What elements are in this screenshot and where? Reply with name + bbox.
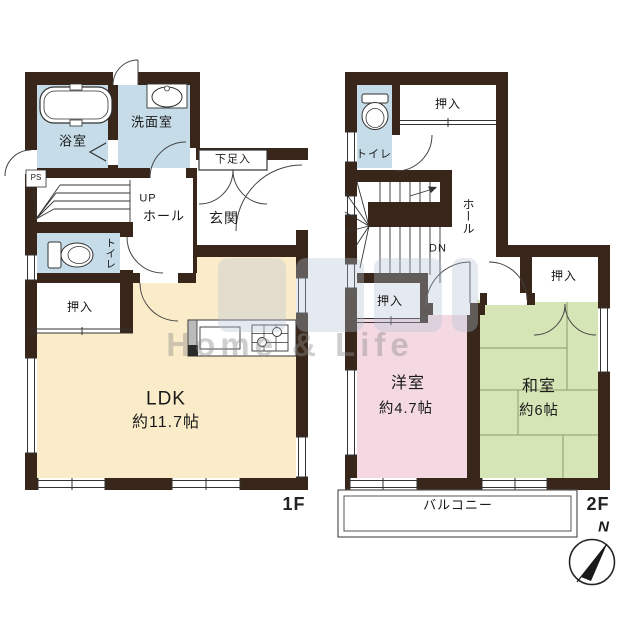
toilet-2f-icon: [362, 94, 388, 130]
japanese-room-label: 和室: [522, 379, 556, 395]
stairs-1f: [33, 180, 130, 222]
stairs-up-label: UP: [139, 194, 156, 205]
closet-1f-label: 押入: [67, 301, 93, 313]
floor1-tag: 1F: [282, 495, 305, 513]
japanese-room-size-label: 約6帖: [519, 404, 559, 419]
bathroom-label: 浴室: [59, 135, 87, 148]
watermark-logo-block: [218, 258, 286, 332]
closet-2f-east-label: 押入: [551, 270, 577, 282]
bathtub-icon: [40, 84, 112, 126]
closet-2f-north-label: 押入: [435, 98, 461, 110]
balcony-label: バルコニー: [423, 499, 493, 512]
ldk-size-label: 約11.7帖: [132, 415, 200, 431]
washbasin-icon: [147, 84, 187, 108]
floorplan-canvas: Home & Life 浴室 洗面室 下足入 玄関 ホール UP トイレ 押入 …: [0, 0, 626, 627]
hall-2f-label: ホール: [462, 198, 474, 234]
hall-1f-label: ホール: [143, 210, 185, 223]
ldk-label: LDK: [146, 390, 186, 409]
compass-north-label: N: [598, 520, 610, 535]
shoe-cabinet-label: 下足入: [215, 155, 251, 166]
western-room-size-label: 約4.7帖: [379, 402, 433, 417]
toilet-2f-label: トイレ: [356, 150, 392, 161]
floor2-tag: 2F: [586, 495, 609, 513]
compass-icon: [570, 540, 615, 585]
entrance-label: 玄関: [209, 211, 239, 225]
pipe-space-label: PS: [31, 174, 42, 182]
watermark-text: Home & Life: [166, 326, 414, 364]
western-room-label: 洋室: [391, 376, 425, 392]
stairs-down-label: DN: [429, 244, 447, 255]
toilet-1f-label: トイレ: [105, 237, 116, 269]
closet-2f-west-label: 押入: [377, 295, 403, 307]
watermark-logo-block: [296, 258, 364, 332]
watermark-logo-block: [452, 258, 478, 332]
washroom-label: 洗面室: [131, 116, 173, 129]
toilet-1f-icon: [48, 242, 93, 268]
